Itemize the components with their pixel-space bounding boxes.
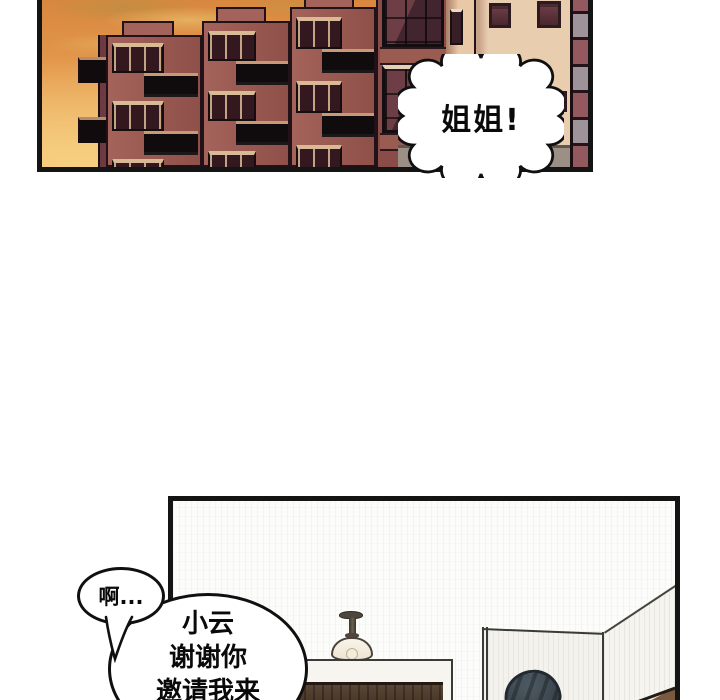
bay-window — [112, 101, 164, 131]
speech-text-ah: 啊... — [99, 581, 144, 611]
balcony — [78, 57, 108, 83]
bay-window — [208, 91, 256, 121]
door-frame-right — [602, 632, 604, 700]
comic-page: 姐姐! 小云 谢谢你 — [0, 0, 720, 700]
bay-window — [296, 81, 342, 113]
bay-window — [296, 145, 342, 167]
hallway-wall — [604, 584, 675, 700]
balcony — [78, 117, 108, 143]
balcony — [236, 61, 288, 85]
bay-window — [112, 159, 164, 167]
bay-window — [296, 17, 342, 49]
balcony — [322, 49, 374, 73]
balcony — [236, 121, 288, 145]
apartment-tower — [202, 21, 290, 167]
glass-facade-strip — [570, 0, 588, 167]
bay-window-large — [382, 0, 444, 47]
bay-window — [112, 43, 164, 73]
balcony — [144, 73, 198, 97]
speech-bubble-sister: 姐姐! — [398, 54, 564, 178]
apartment-tower — [106, 35, 202, 167]
balcony — [322, 113, 374, 137]
bay-window — [208, 31, 256, 61]
small-window — [489, 3, 511, 28]
balcony — [144, 131, 198, 155]
small-window — [537, 1, 561, 28]
speech-line: 邀请我来 — [108, 675, 308, 700]
wood-headboard — [295, 682, 443, 700]
speech-bubble-tail — [95, 613, 141, 663]
speech-text-sister: 姐姐! — [398, 54, 564, 178]
bay-window — [208, 151, 256, 167]
window-slit — [450, 9, 463, 45]
apartment-tower — [290, 7, 376, 167]
